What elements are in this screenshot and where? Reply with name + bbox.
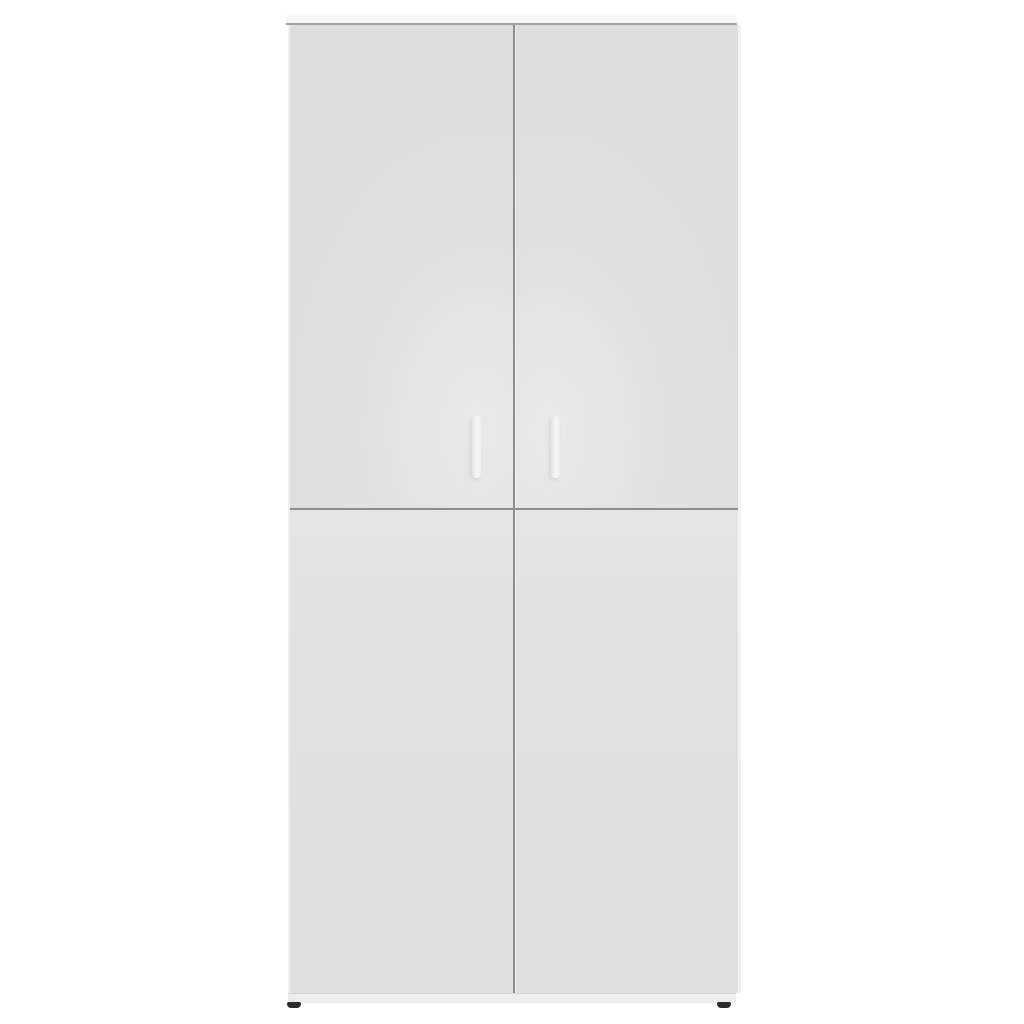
cabinet <box>288 15 736 1008</box>
foot-right <box>717 1002 731 1008</box>
foot-left <box>287 1002 301 1008</box>
door-top-right <box>515 25 738 508</box>
cabinet-doors <box>288 25 741 993</box>
cabinet-plinth <box>288 993 736 1003</box>
door-bottom-left <box>290 510 513 993</box>
door-bottom-right <box>515 510 738 993</box>
cabinet-top-panel <box>286 15 737 25</box>
product-photo-background <box>0 0 1024 1024</box>
handle-right <box>551 416 560 478</box>
handle-left <box>472 416 481 478</box>
